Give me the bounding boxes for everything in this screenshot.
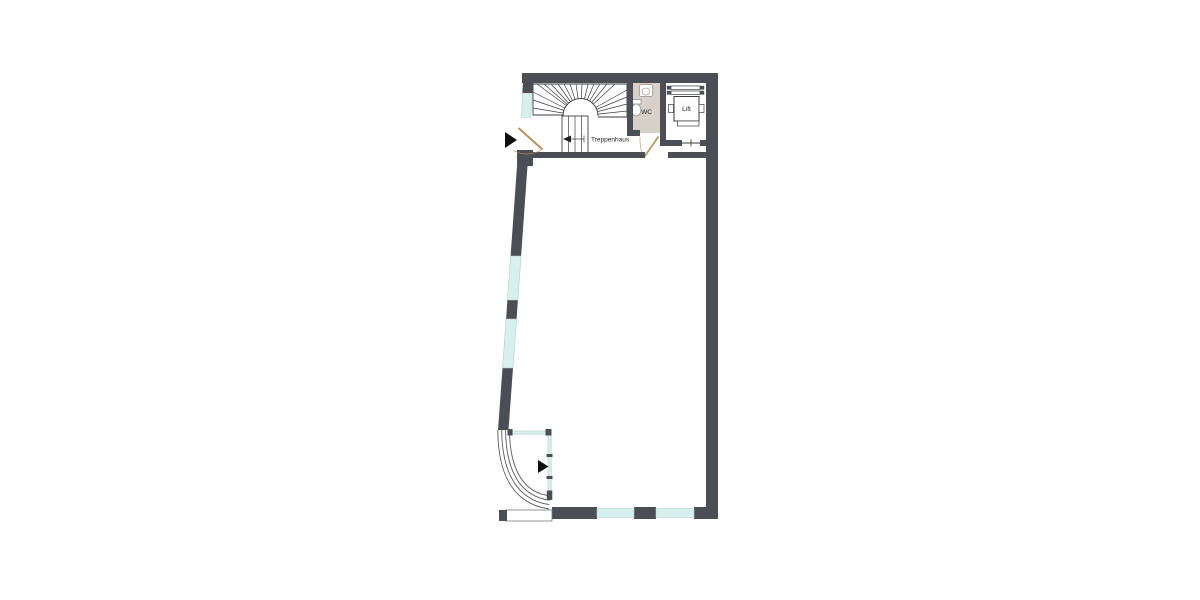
lift-guide-block <box>700 86 704 90</box>
lift-rail-left <box>669 105 674 113</box>
glass-door-tick <box>547 476 553 479</box>
lift-door-guide-bar <box>671 91 700 94</box>
lift-shaft: Lift <box>667 86 704 147</box>
left-wall-lower <box>498 368 513 430</box>
lift-bottom-wall-end <box>700 140 706 146</box>
stairs-label: Treppenhaus <box>591 137 630 144</box>
entrance-arrow-icon <box>538 460 549 473</box>
window-left-mid-2 <box>503 319 517 368</box>
left-wall-top <box>522 73 534 93</box>
entrance-threshold <box>506 510 553 521</box>
wc-label: WC <box>641 109 652 116</box>
wc-door-leaf <box>644 137 659 159</box>
glass-wall-vertical <box>548 431 551 497</box>
entrance-arrow-icon <box>505 132 517 148</box>
left-wall-upper <box>511 152 529 256</box>
window-bottom-2 <box>656 509 694 518</box>
lift-sill <box>678 121 700 126</box>
lift-left-wall <box>660 83 666 146</box>
lift-guide-block <box>667 91 671 95</box>
window-left-mid-1 <box>507 256 521 300</box>
wc-left-wall <box>627 83 633 136</box>
entrance-door-leaf <box>519 128 543 150</box>
hall-wall-left <box>520 152 645 158</box>
lift-bottom-wall <box>660 140 682 146</box>
lift-guide-block <box>667 86 671 90</box>
curved-wall-line <box>510 430 551 496</box>
staircase: Treppenhaus <box>533 84 630 153</box>
wc-bottom-wall <box>627 130 640 136</box>
bottom-wall-pier <box>634 507 656 519</box>
right-wall <box>706 73 718 518</box>
bottom-wall-left <box>552 507 597 519</box>
entrance-threshold-stub <box>499 510 507 521</box>
bottom-wall-corner <box>694 507 718 519</box>
glass-mullion <box>547 491 553 501</box>
left-wall-pier <box>506 300 518 319</box>
lift-label: Lift <box>682 106 691 113</box>
top-wall <box>522 73 718 83</box>
floor-plan: Treppenhaus WC Lift <box>0 0 1200 600</box>
hall-wall-right <box>668 152 706 158</box>
glass-door-tick <box>547 454 553 457</box>
glass-wall-horizontal <box>511 431 548 434</box>
window-bottom-1 <box>597 509 634 518</box>
entrance-bottom <box>498 429 553 521</box>
glass-mullion <box>508 429 513 436</box>
lift-rail-right <box>699 105 704 113</box>
floor-plan-canvas: Treppenhaus WC Lift <box>0 0 1200 600</box>
glass-mullion <box>546 429 552 436</box>
window-left-top <box>521 94 532 118</box>
lift-guide-block <box>700 91 704 95</box>
toilet-bowl-icon <box>632 104 641 116</box>
lift-door-guide-bar <box>671 86 700 89</box>
